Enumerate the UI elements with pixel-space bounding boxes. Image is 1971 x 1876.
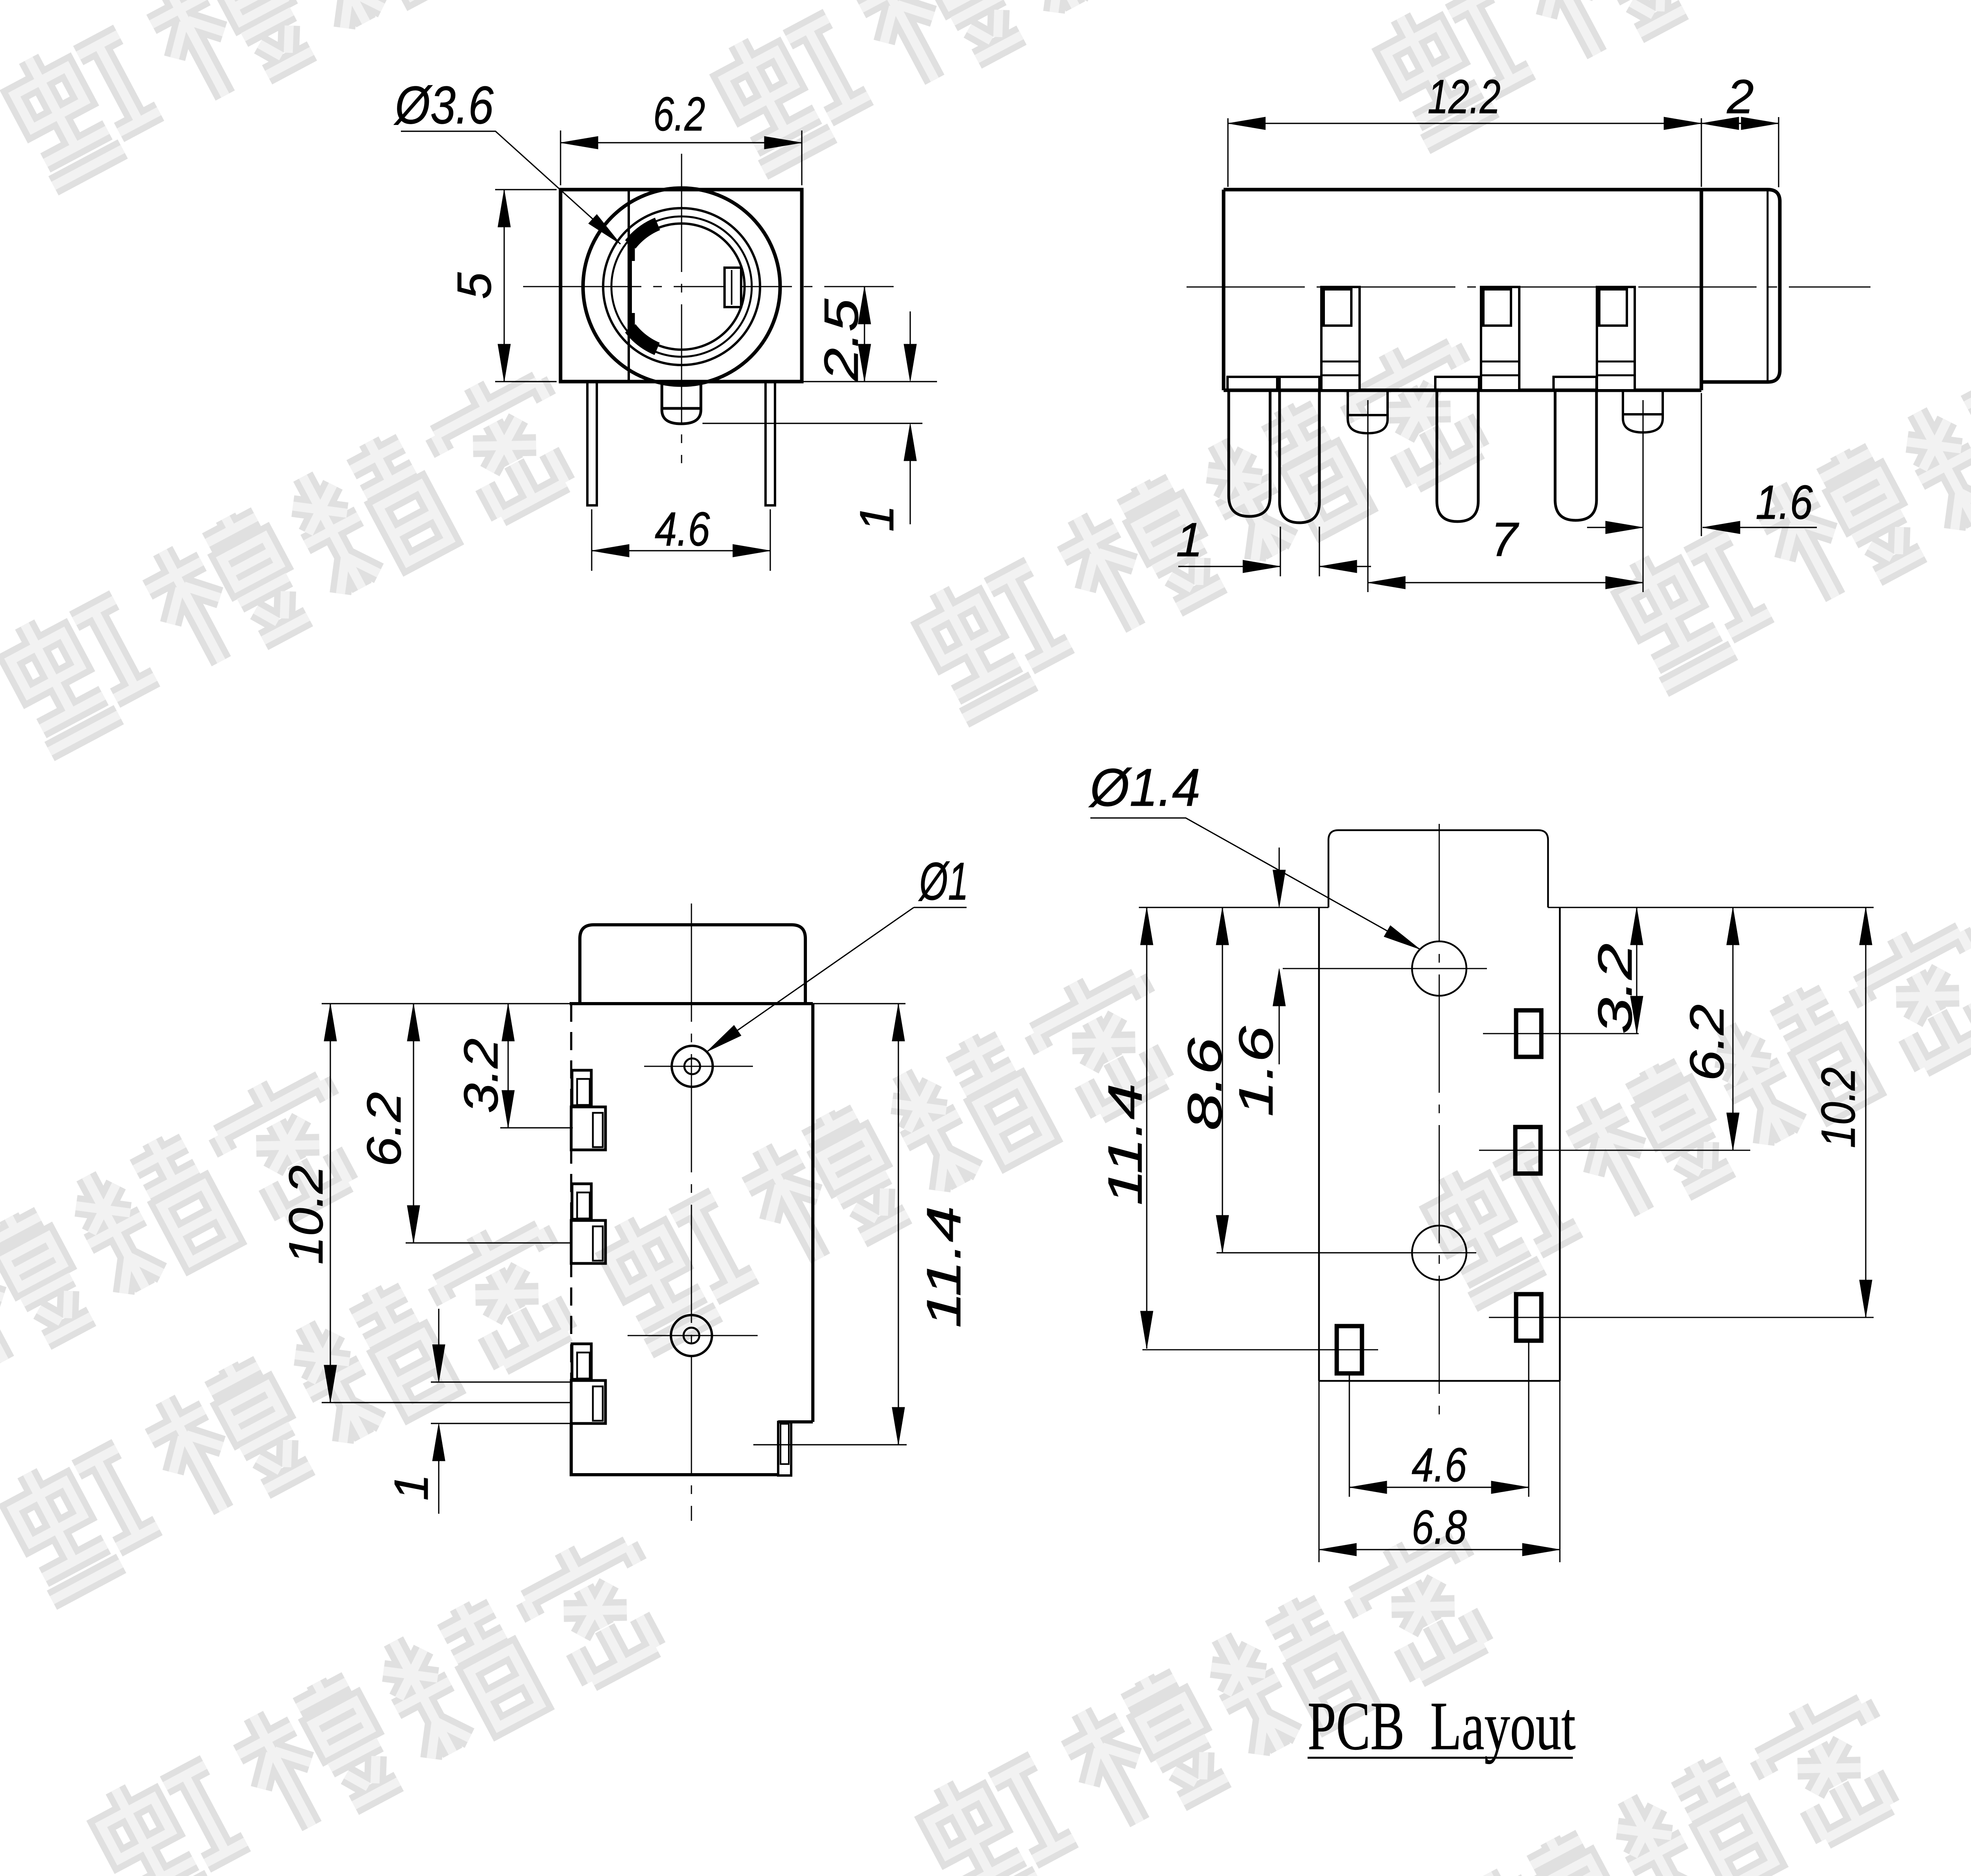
svg-text:1: 1 (1176, 513, 1203, 566)
svg-text:11.4: 11.4 (917, 1206, 971, 1328)
svg-text:3.2: 3.2 (1588, 943, 1642, 1034)
svg-text:10.2: 10.2 (279, 1165, 333, 1265)
svg-text:8.6: 8.6 (1178, 1038, 1231, 1130)
svg-text:Ø1: Ø1 (918, 851, 969, 911)
svg-text:1: 1 (384, 1474, 438, 1501)
svg-text:1.6: 1.6 (1756, 475, 1813, 529)
svg-text:3.2: 3.2 (454, 1038, 508, 1113)
svg-text:12.2: 12.2 (1428, 70, 1501, 123)
svg-text:7: 7 (1491, 512, 1519, 566)
svg-text:Ø3.6: Ø3.6 (394, 75, 494, 135)
svg-text:11.4: 11.4 (1098, 1083, 1152, 1205)
svg-text:4.6: 4.6 (1412, 1438, 1467, 1492)
svg-text:6.2: 6.2 (653, 87, 705, 141)
svg-text:1: 1 (850, 505, 904, 532)
svg-text:5: 5 (447, 272, 501, 299)
svg-text:6.2: 6.2 (1680, 1004, 1734, 1081)
svg-text:Ø1.4: Ø1.4 (1088, 758, 1200, 817)
svg-text:2.5: 2.5 (814, 298, 868, 382)
svg-text:4.6: 4.6 (655, 502, 710, 556)
svg-text:PCB Layout: PCB Layout (1308, 1688, 1576, 1764)
svg-text:10.2: 10.2 (1811, 1067, 1865, 1148)
svg-text:2: 2 (1727, 70, 1754, 123)
svg-text:6.8: 6.8 (1412, 1500, 1467, 1554)
svg-text:6.2: 6.2 (357, 1092, 411, 1167)
svg-text:1.6: 1.6 (1229, 1026, 1283, 1117)
